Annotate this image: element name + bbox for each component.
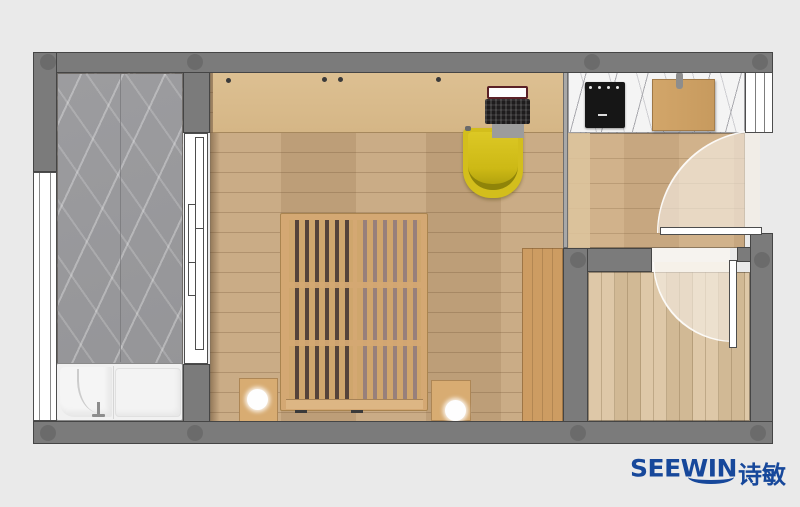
wall-mid-vertical: [563, 248, 588, 422]
column-top-3: [584, 54, 600, 70]
column-mid-1: [570, 252, 586, 268]
bed-cross-rail-2: [289, 340, 421, 346]
column-top-2: [187, 54, 203, 70]
bathroom-slab-seam: [120, 74, 121, 362]
wall-left-upper: [33, 52, 57, 172]
bathroom-sliding-door: [184, 133, 208, 364]
wall-bath-divider-lower: [183, 364, 210, 422]
bed-cross-rail-1: [289, 282, 421, 288]
counter-cabinet: [652, 79, 715, 131]
brand-logo-text-zh: 诗敏: [738, 455, 786, 490]
lamp-left: [247, 389, 268, 410]
window-top-right: [745, 72, 773, 133]
faucet-handle: [92, 414, 105, 417]
cooktop-knob-3: [607, 86, 610, 89]
window-left: [33, 172, 57, 421]
window-left-mullion-1: [39, 173, 40, 420]
cooktop-knob-4: [616, 86, 619, 89]
bedroom-kitchen-partition: [563, 72, 568, 248]
desk-handle-1: [226, 78, 231, 83]
desk-handle-4: [436, 77, 441, 82]
desk-chair-seat: [468, 132, 518, 190]
laptop-screen: [487, 86, 528, 99]
bathtub-right-basin: [115, 368, 181, 417]
desk-chair: [463, 128, 523, 198]
column-bottom-1: [40, 425, 56, 441]
lamp-right: [445, 400, 466, 421]
desk-handle-2: [322, 77, 327, 82]
bathtub-divider: [113, 366, 114, 419]
bathtub: [56, 363, 183, 421]
column-top-4: [752, 54, 768, 70]
laptop-keyboard: [485, 99, 530, 124]
column-bottom-3: [570, 425, 586, 441]
column-bottom-4: [750, 425, 766, 441]
small-room-door-leaf: [729, 260, 737, 348]
chair-hinge-left: [465, 126, 471, 131]
brand-logo: SEEWIN 诗敏: [630, 452, 795, 492]
sliding-panel-4: [188, 262, 196, 296]
window-left-mullion-2: [50, 173, 51, 420]
wall-bath-divider-upper: [183, 72, 210, 133]
column-top-1: [40, 54, 56, 70]
platform-bed: [280, 213, 428, 411]
kitchen-floor-light-strip: [568, 133, 590, 248]
sliding-panel-1: [195, 137, 204, 230]
bed-slats-right: [357, 220, 421, 400]
wardrobe: [522, 248, 563, 422]
column-mid-2: [754, 252, 770, 268]
wall-top: [33, 52, 773, 73]
brand-logo-swoosh: [688, 470, 734, 484]
bed-slats-left: [289, 220, 353, 400]
cooktop: [585, 82, 625, 128]
bed-foot-mark-1: [295, 410, 307, 413]
cooktop-knob-2: [598, 86, 601, 89]
floorplan-canvas: SEEWIN 诗敏: [0, 0, 800, 507]
sliding-panel-3: [195, 228, 204, 350]
cooktop-knob-1: [589, 86, 592, 89]
wall-bottom: [33, 421, 773, 444]
bed-foot-mark-2: [351, 410, 363, 413]
cabinet-handle: [676, 72, 683, 89]
desk-stool: [492, 124, 524, 138]
window-tr-mullion-2: [764, 73, 765, 132]
bed-foot-rail: [286, 399, 423, 409]
column-bottom-2: [187, 425, 203, 441]
kitchen-door-leaf: [660, 227, 762, 235]
window-tr-mullion-1: [755, 73, 756, 132]
cooktop-display: [598, 114, 607, 116]
desk-handle-3: [338, 77, 343, 82]
wall-right-step: [737, 247, 751, 262]
